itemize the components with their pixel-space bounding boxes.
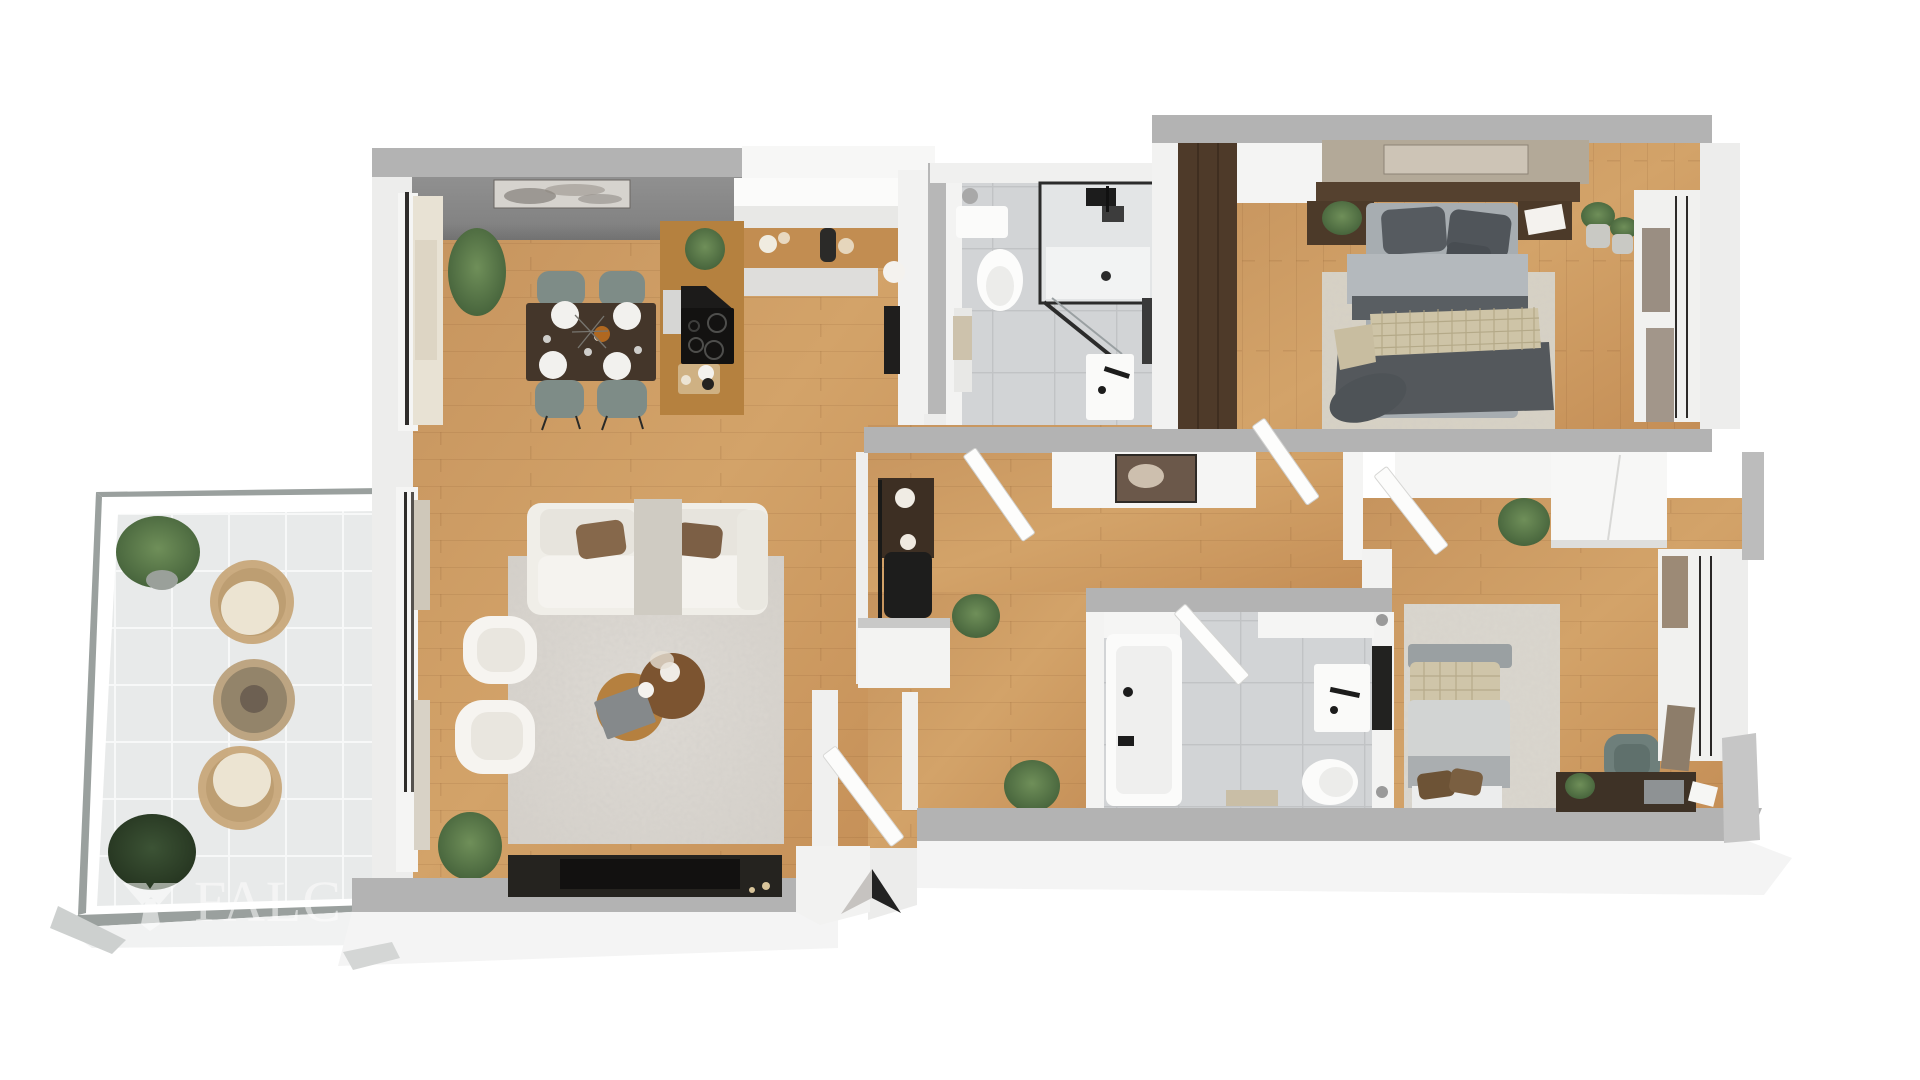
svg-text:FALC: FALC [194, 869, 342, 934]
